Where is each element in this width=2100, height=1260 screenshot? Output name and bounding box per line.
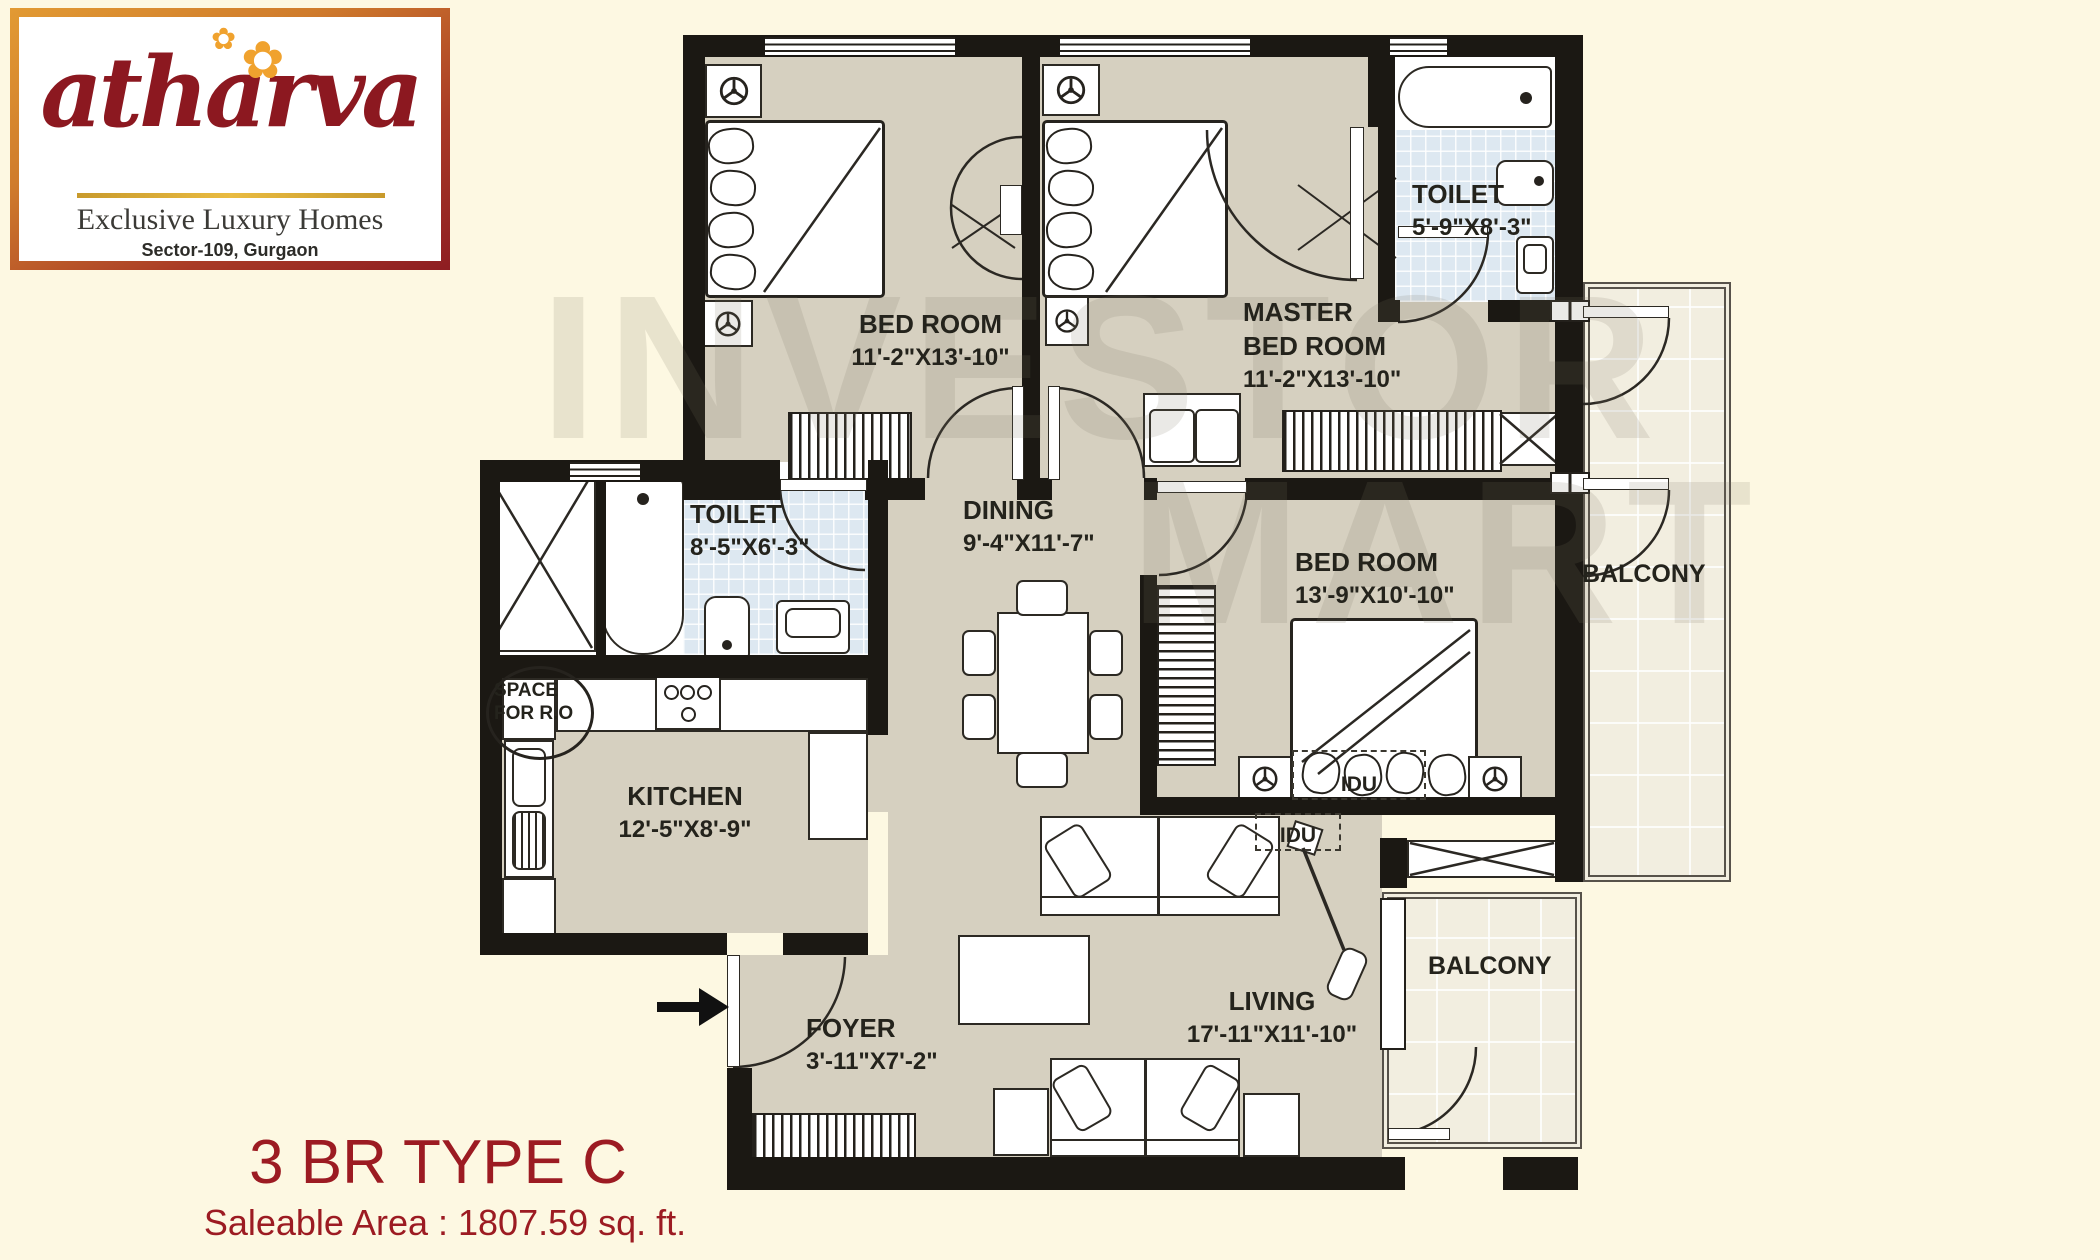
door-leaf [1012, 386, 1024, 480]
wall [1557, 838, 1582, 882]
side-table [1042, 64, 1100, 116]
wall [868, 460, 888, 735]
room-name: TOILET [1412, 178, 1532, 212]
label-master-bedroom: MASTER BED ROOM 11'-2"X13'-10" [1243, 296, 1401, 395]
dining-table [997, 612, 1089, 754]
room-name: BALCONY [1582, 560, 1706, 588]
label-living: LIVING 17'-11"X11'-10" [1152, 985, 1392, 1050]
room-name: MASTER [1243, 296, 1401, 330]
side-table [1243, 1093, 1300, 1157]
room-name: TOILET [690, 498, 810, 532]
sofa-sectional [1040, 816, 1280, 916]
room-dims: 11'-2"X13'-10" [828, 342, 1033, 373]
door-leaf [1388, 1128, 1450, 1140]
door-leaf [780, 479, 867, 491]
hob-burners [657, 678, 719, 728]
dining-chair [1089, 630, 1123, 676]
window [1390, 37, 1447, 55]
door-leaf [1000, 185, 1022, 235]
label-bedroom3: BED ROOM 13'-9"X10'-10" [1295, 546, 1455, 611]
kitchen-hob [655, 676, 721, 730]
side-table [993, 1088, 1049, 1156]
room-dims: 11'-2"X13'-10" [1243, 364, 1401, 395]
wash-basin [1516, 236, 1554, 294]
dining-chair [962, 694, 996, 740]
burner-icon [664, 685, 679, 700]
room-name: KITCHEN [595, 780, 775, 814]
room-dims: 13'-9"X10'-10" [1295, 580, 1455, 611]
dining-chair [1089, 694, 1123, 740]
sofa-bottom [1050, 1058, 1240, 1157]
room-name: BED ROOM [828, 308, 1033, 342]
wall [683, 35, 705, 482]
wall [1144, 478, 1157, 500]
wall [1022, 57, 1040, 478]
door-leaf [1350, 127, 1364, 279]
room-dims: 12'-5"X8'-9" [595, 814, 775, 845]
dining-chair [962, 630, 996, 676]
fan-icon [1480, 764, 1510, 794]
label-balcony-bottom: BALCONY [1428, 950, 1552, 983]
label-toilet-top: TOILET 5'-9"X8'-3" [1412, 178, 1532, 243]
plan-type-title: 3 BR TYPE C [238, 1132, 638, 1194]
side-table [705, 64, 762, 118]
kitchen-sink [504, 740, 554, 878]
side-table [1045, 296, 1089, 346]
room-name: BED ROOM [1295, 546, 1455, 580]
label-line: SPACE [494, 680, 573, 703]
logo-inner: ✿ ✿ atharva Exclusive Luxury Homes Secto… [19, 17, 441, 261]
burner-icon [697, 685, 712, 700]
bathtub [1398, 66, 1552, 128]
coffee-table [958, 935, 1090, 1025]
shaft [1498, 412, 1560, 466]
label-foyer: FOYER 3'-11"X7'-2" [806, 1012, 938, 1077]
door-leaf [1157, 481, 1247, 493]
room-name: BALCONY [1428, 952, 1552, 980]
label-line: FOR R.O [494, 703, 573, 726]
entry-arrow-icon [699, 988, 729, 1026]
wall [1380, 838, 1407, 888]
idu-label: IDU [1341, 774, 1377, 795]
brand-logo-card: ✿ ✿ atharva Exclusive Luxury Homes Secto… [10, 8, 450, 270]
side-table [1468, 756, 1522, 802]
loveseat-master [1143, 393, 1241, 467]
wall [727, 1157, 1405, 1190]
window [570, 462, 640, 480]
dining-chair [1016, 580, 1068, 616]
flower-icon: ✿ [241, 35, 285, 87]
wall [1368, 57, 1383, 127]
room-dims: 8'-5"X6'-3" [690, 532, 810, 563]
idu-unit-living: IDU [1255, 813, 1341, 851]
idu-unit-bedroom3: IDU [1292, 750, 1426, 800]
wardrobe [1157, 585, 1216, 766]
label-dining: DINING 9'-4"X11'-7" [963, 494, 1095, 559]
saleable-area-text: Saleable Area : 1807.59 sq. ft. [190, 1205, 700, 1241]
label-kitchen: KITCHEN 12'-5"X8'-9" [595, 780, 775, 845]
fan-icon [1250, 764, 1280, 794]
window [1060, 37, 1250, 55]
burner-icon [681, 707, 696, 722]
fan-icon [1053, 307, 1081, 335]
wash-basin [776, 600, 850, 654]
room-dims: 17'-11"X11'-10" [1152, 1019, 1392, 1050]
kitchen-counter [502, 878, 556, 935]
wall [1503, 1157, 1578, 1190]
label-toilet-mid: TOILET 8'-5"X6'-3" [690, 498, 810, 563]
dining-chair [1016, 752, 1068, 788]
label-bedroom1: BED ROOM 11'-2"X13'-10" [828, 308, 1033, 373]
label-space-for-ro: SPACE FOR R.O [494, 680, 573, 726]
gold-divider [77, 193, 385, 198]
fan-icon [713, 309, 743, 339]
label-balcony-right: BALCONY [1582, 558, 1706, 591]
shaft [484, 470, 596, 652]
room-dims: 9'-4"X11'-7" [963, 528, 1095, 559]
kitchen-counter [808, 732, 868, 840]
window [765, 37, 955, 55]
bathtub [602, 477, 684, 655]
side-table [1238, 756, 1292, 802]
door-leaf [1583, 478, 1669, 490]
wardrobe [1282, 410, 1502, 472]
room-name: LIVING [1152, 985, 1392, 1019]
door-leaf [1583, 306, 1669, 318]
wall [1245, 478, 1583, 500]
wall [596, 462, 606, 655]
room-name: FOYER [806, 1012, 938, 1046]
brand-tagline: Exclusive Luxury Homes [19, 205, 441, 235]
wall [490, 933, 727, 955]
toilet-wc [704, 596, 750, 660]
window-grill [752, 1113, 916, 1161]
fan-icon [717, 74, 751, 108]
room-name: DINING [963, 494, 1095, 528]
burner-icon [680, 685, 695, 700]
flower-icon: ✿ [211, 25, 236, 55]
fan-icon [1054, 73, 1088, 107]
idu-label: IDU [1280, 825, 1316, 846]
room-dims: 5'-9"X8'-3" [1412, 212, 1532, 243]
wall [783, 933, 868, 955]
room-dims: 3'-11"X7'-2" [806, 1046, 938, 1077]
wall [480, 460, 500, 678]
side-table [703, 300, 753, 347]
room-name: BED ROOM [1243, 330, 1401, 364]
entry-arrow-icon [657, 1002, 701, 1012]
door-leaf [1048, 386, 1060, 480]
wardrobe [788, 412, 912, 480]
floor-plan-page: { "logo": { "brand": "atharva", "flower_… [0, 0, 2100, 1260]
wall [1555, 35, 1583, 882]
balcony-bottom [1382, 892, 1582, 1149]
brand-name: atharva [19, 45, 441, 141]
wall [1140, 575, 1157, 812]
shaft [1407, 840, 1557, 878]
brand-location: Sector-109, Gurgaon [19, 241, 441, 259]
